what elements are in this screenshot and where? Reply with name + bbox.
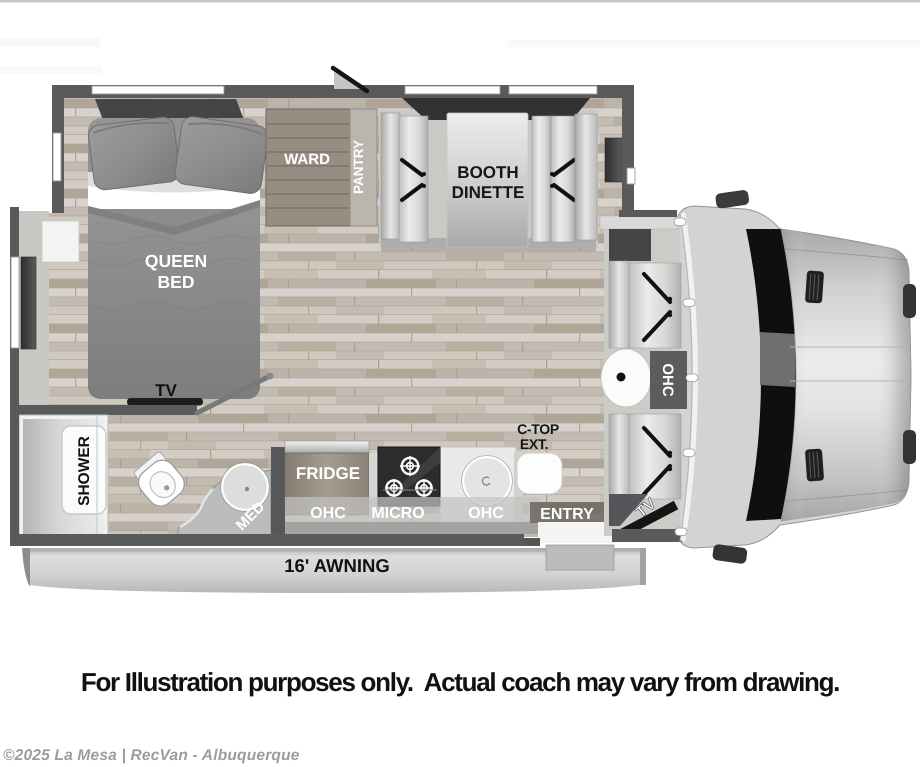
svg-text:TV: TV bbox=[155, 381, 177, 400]
svg-text:©2025 La Mesa | RecVan - Albuq: ©2025 La Mesa | RecVan - Albuquerque bbox=[3, 747, 300, 764]
svg-text:BOOTH: BOOTH bbox=[457, 163, 518, 182]
svg-text:MICRO: MICRO bbox=[371, 505, 424, 522]
svg-text:C-TOP: C-TOP bbox=[517, 421, 559, 437]
svg-text:FRIDGE: FRIDGE bbox=[296, 464, 360, 483]
svg-text:WARD: WARD bbox=[284, 151, 330, 168]
svg-text:OHC: OHC bbox=[468, 505, 504, 522]
svg-text:16' AWNING: 16' AWNING bbox=[284, 555, 389, 576]
svg-text:SHOWER: SHOWER bbox=[76, 436, 93, 506]
svg-text:BED: BED bbox=[158, 272, 195, 292]
svg-text:For Illustration purposes only: For Illustration purposes only. Actual c… bbox=[81, 667, 839, 697]
svg-text:OHC: OHC bbox=[310, 505, 346, 522]
svg-text:PANTRY: PANTRY bbox=[351, 140, 366, 194]
svg-text:EXT.: EXT. bbox=[520, 436, 548, 452]
svg-text:ENTRY: ENTRY bbox=[540, 506, 594, 523]
svg-text:DINETTE: DINETTE bbox=[452, 183, 525, 202]
svg-text:QUEEN: QUEEN bbox=[145, 251, 207, 271]
svg-text:OHC: OHC bbox=[659, 363, 676, 397]
